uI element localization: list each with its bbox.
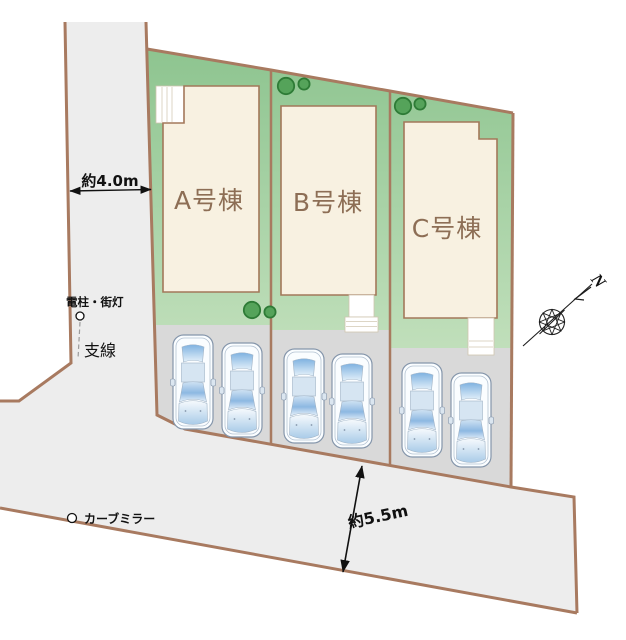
curve-mirror-label: カーブミラー xyxy=(84,511,155,526)
guy-wire-label: 支線 xyxy=(84,341,116,360)
car-icon xyxy=(330,354,375,448)
car-icon xyxy=(282,349,327,443)
building-a-label: A号棟 xyxy=(174,186,244,215)
north-compass-icon: N xyxy=(523,269,610,346)
front-road-width-label: 約4.0m xyxy=(81,172,138,190)
lot-c-right-boundary xyxy=(511,113,513,487)
utility-pole-icon xyxy=(76,312,84,320)
building-b-label: B号棟 xyxy=(293,188,363,217)
car-icon xyxy=(449,373,494,467)
site-plan-svg: A号棟 B号棟 C号棟 約4.0m 約5.5m 電柱・街灯 支線 カーブミラー xyxy=(0,0,626,640)
building-c-label: C号棟 xyxy=(412,214,482,243)
compass-north-label: N xyxy=(587,269,611,292)
car-icon xyxy=(400,363,445,457)
utility-pole-label: 電柱・街灯 xyxy=(66,295,124,309)
site-plan: A号棟 B号棟 C号棟 約4.0m 約5.5m 電柱・街灯 支線 カーブミラー xyxy=(0,0,626,640)
road-left-boundary xyxy=(0,22,71,401)
car-icon xyxy=(171,335,216,429)
car-icon xyxy=(220,343,265,437)
curve-mirror-icon xyxy=(68,514,77,523)
